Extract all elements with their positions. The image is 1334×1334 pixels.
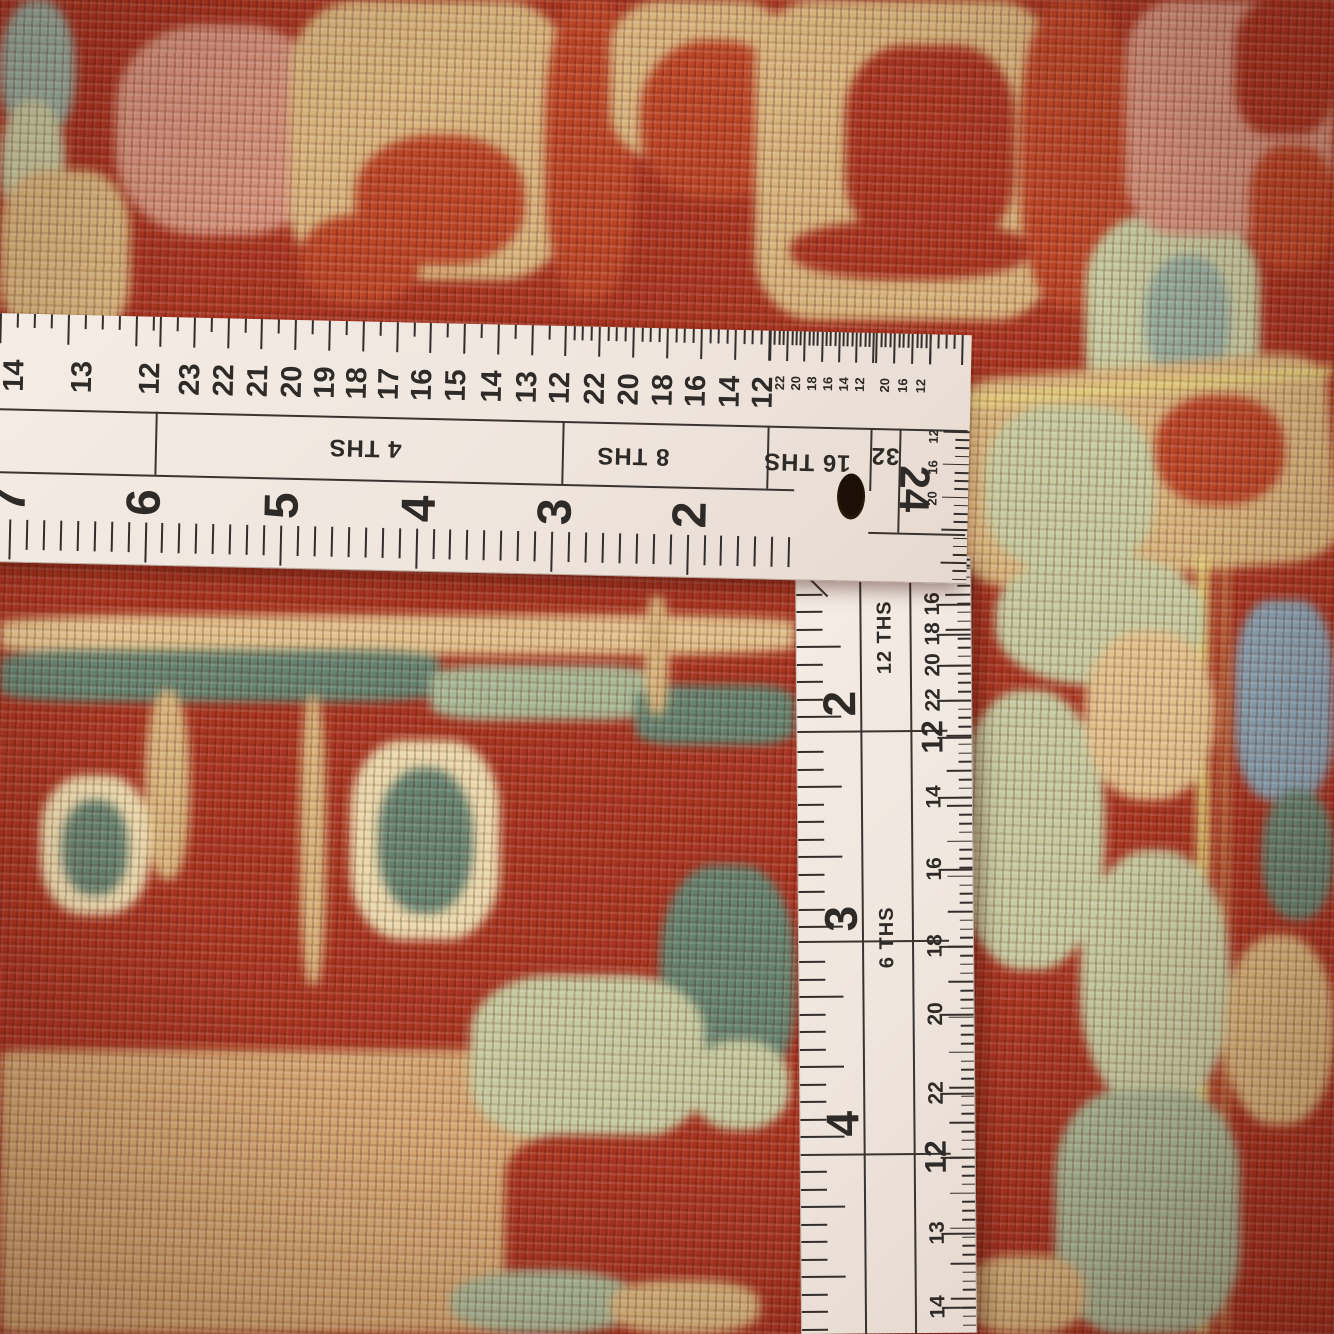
ruler-tick xyxy=(313,526,316,556)
ruler-tick xyxy=(700,329,703,359)
ruler-tick xyxy=(398,528,401,558)
corner-mini-number: 16 xyxy=(926,460,939,475)
ruler-tick xyxy=(830,332,832,346)
ruler-tick xyxy=(534,531,537,561)
ruler-tick xyxy=(812,332,814,346)
ruler-tick xyxy=(598,327,601,357)
ruler-tick xyxy=(463,324,466,354)
ruler-tick xyxy=(962,1139,975,1141)
inch-number: 3 xyxy=(818,906,864,932)
ruler-tick xyxy=(717,329,719,343)
ruler-tick xyxy=(963,1289,976,1291)
ruler-tick xyxy=(798,751,824,753)
corner-tick xyxy=(942,496,968,498)
scale-number: 12 xyxy=(853,377,866,392)
ruler-hang-hole xyxy=(837,473,866,520)
ruler-tick xyxy=(860,333,862,347)
ruler-tick xyxy=(920,334,922,348)
ruler-tick xyxy=(800,1066,844,1068)
inch-number: 2 xyxy=(666,501,715,529)
ruler-tick xyxy=(396,322,399,352)
scale-number: 20 xyxy=(278,365,308,398)
number-tick xyxy=(942,1307,976,1309)
ruler-tick xyxy=(796,611,822,613)
ruler-tick xyxy=(102,315,104,329)
ruler-tick xyxy=(961,1095,974,1097)
ruler-tick xyxy=(531,325,534,355)
ruler-tick xyxy=(953,335,955,349)
ruler-tick xyxy=(246,525,249,555)
corner-tick xyxy=(955,472,969,474)
ruler-tick xyxy=(801,1223,827,1225)
scale-label: 12 THS xyxy=(874,600,895,674)
ruler-tick xyxy=(795,331,797,345)
ruler-tick xyxy=(959,823,972,825)
ruler-tick xyxy=(945,594,970,596)
ruler-tick xyxy=(958,708,971,710)
corner-tick xyxy=(952,570,966,572)
ruler-tick xyxy=(500,531,503,561)
ruler-tick xyxy=(67,315,70,345)
ruler-tick xyxy=(961,1043,974,1045)
number-tick xyxy=(940,1093,974,1095)
ruler-tick xyxy=(548,326,550,340)
scale-label: 16 THS xyxy=(763,449,851,475)
scale-number: 19 xyxy=(311,366,341,399)
ruler-line xyxy=(0,408,968,432)
ruler-tick xyxy=(227,318,230,348)
ruler-tick xyxy=(312,320,314,334)
ruler-tick xyxy=(855,333,858,363)
ruler-tick xyxy=(279,526,282,566)
ruler-tick xyxy=(961,1078,974,1080)
ruler-tick xyxy=(957,585,970,587)
ruler-tick xyxy=(948,911,973,913)
ruler-tick xyxy=(798,873,824,875)
ruler-tick xyxy=(798,768,824,770)
ruler-tick xyxy=(961,1025,974,1027)
scale-label: 4 THS xyxy=(328,435,402,461)
corner-tick xyxy=(954,480,968,482)
ruler-tick xyxy=(449,529,452,559)
band-divider xyxy=(154,412,157,475)
ruler-tick xyxy=(797,628,823,630)
corner-tick xyxy=(952,578,966,580)
scale-number: 21 xyxy=(244,365,274,398)
ruler-tick xyxy=(960,893,973,895)
ruler-tick xyxy=(743,330,745,344)
ruler-tick xyxy=(959,752,972,754)
ruler-tick xyxy=(801,1206,845,1208)
scale-label: 32 xyxy=(870,443,899,468)
ruler-tick xyxy=(800,331,802,345)
ruler-tick xyxy=(760,330,762,344)
ruler-tick xyxy=(961,1060,974,1062)
ruler-tick xyxy=(962,1148,975,1150)
ruler-tick xyxy=(961,1113,974,1115)
ruler-tick xyxy=(658,328,660,342)
scale-number: 20 xyxy=(878,378,891,393)
scale-number: 20 xyxy=(615,373,645,406)
ruler-tick xyxy=(692,329,694,343)
ruler-tick xyxy=(959,849,972,851)
ruler-tick xyxy=(960,972,973,974)
ruler-tick xyxy=(720,536,723,566)
ruler-tick xyxy=(960,884,973,886)
ruler-tick xyxy=(737,536,740,566)
corner-tick xyxy=(955,447,969,449)
ruler-tick xyxy=(261,319,264,349)
ruler-tick xyxy=(430,323,433,353)
ruler-tick xyxy=(947,805,972,807)
ruler-tick xyxy=(244,319,246,333)
ruler-tick xyxy=(937,334,939,348)
scale-number: 18 xyxy=(649,374,679,407)
ruler-tick xyxy=(797,646,841,648)
ruler-tick xyxy=(379,322,381,336)
ruler-tick xyxy=(962,1254,975,1256)
ruler-tick xyxy=(347,527,350,557)
ruler-tick xyxy=(413,323,415,337)
ruler-tick xyxy=(949,1087,974,1089)
ruler-tick xyxy=(684,329,686,343)
ruler-tick xyxy=(796,593,822,595)
scale-number: 15 xyxy=(442,369,472,402)
scale-number: 14 xyxy=(716,375,746,408)
ruler-tick xyxy=(675,329,677,343)
ruler-tick xyxy=(135,316,138,346)
ruler-tick xyxy=(961,1007,974,1009)
ruler-tick xyxy=(962,1219,975,1221)
ruler-tick xyxy=(958,691,971,693)
ruler-tick xyxy=(960,999,973,1001)
ruler-tick xyxy=(902,334,904,348)
scale-number: 13 xyxy=(513,371,543,404)
ruler-tick xyxy=(466,530,469,560)
photo-vignette xyxy=(0,0,1334,1334)
ruler-tick xyxy=(193,318,196,348)
ruler-tick xyxy=(774,331,776,345)
ruler-tick xyxy=(801,1171,827,1173)
scale-number: 14 xyxy=(837,377,850,392)
ruler-tick xyxy=(960,990,973,992)
ruler-tick xyxy=(330,527,333,557)
ruler-tick xyxy=(778,331,780,345)
ruler-tick xyxy=(958,682,971,684)
ruler-tick xyxy=(345,321,347,335)
ruler-tick xyxy=(703,535,706,565)
ruler-tick xyxy=(949,1016,974,1018)
ruler-tick xyxy=(294,320,297,350)
ruler-tick xyxy=(381,528,384,558)
ruler-tick xyxy=(798,838,824,840)
ruler-tick xyxy=(798,786,842,788)
ruler-tick xyxy=(447,323,449,337)
ruler-tick xyxy=(893,333,896,363)
ruler-tick xyxy=(127,522,130,552)
ruler-tick xyxy=(843,332,845,346)
ruler-tick xyxy=(947,875,972,877)
ruler-tick xyxy=(962,1175,975,1177)
scale-number: 12 xyxy=(914,379,927,394)
ruler-tick xyxy=(946,629,971,631)
ruler-tick xyxy=(808,332,810,346)
ruler-tick xyxy=(364,528,367,558)
ruler-tick xyxy=(791,331,793,345)
ruler-tick xyxy=(961,1034,974,1036)
ruler-tick xyxy=(958,647,971,649)
ruler-tick xyxy=(799,978,825,980)
ruler-tick xyxy=(960,955,973,957)
ruler-horizontal-arm: 1413122322212019181716151413122220181614… xyxy=(0,313,972,584)
corner-tick xyxy=(953,546,967,548)
ruler-tick xyxy=(34,314,36,328)
ruler-tick xyxy=(847,332,849,346)
ruler-tick xyxy=(801,1188,827,1190)
ruler-tick xyxy=(889,333,891,347)
ruler-tick xyxy=(962,1201,975,1203)
ruler-tick xyxy=(817,332,819,346)
scale-label: 6 THS xyxy=(877,906,897,968)
ruler-tick xyxy=(751,330,753,344)
ruler-tick xyxy=(93,521,96,551)
ruler-tick xyxy=(0,313,2,343)
ruler-tick xyxy=(951,1298,976,1300)
ruler-tick xyxy=(153,317,155,331)
ruler-tick xyxy=(328,321,331,351)
ruler-tick xyxy=(802,1276,846,1278)
number-tick xyxy=(937,737,971,739)
ruler-tick xyxy=(961,335,964,365)
ruler-tick xyxy=(17,314,19,328)
ruler-tick xyxy=(483,530,486,560)
number-tick xyxy=(940,1014,974,1016)
ruler-tick xyxy=(734,330,737,360)
ruler-tick xyxy=(911,334,914,364)
corner-tick xyxy=(953,554,967,556)
ruler-tick xyxy=(948,981,973,983)
ruler-tick xyxy=(726,330,728,344)
ruler-tick xyxy=(957,620,970,622)
ruler-tick xyxy=(802,1258,828,1260)
ruler-tick xyxy=(582,326,584,340)
ruler-tick xyxy=(950,1227,975,1229)
corner-tick xyxy=(941,562,967,564)
scale-number: 22 xyxy=(773,376,786,391)
ruler-tick xyxy=(962,1166,975,1168)
ruler-tick xyxy=(144,523,147,563)
ruler-vertical-arm: 12 THS6 THS23414161820221214161820221213… xyxy=(795,557,977,1334)
ruler-tick xyxy=(618,533,621,563)
inch-number: 4 xyxy=(395,495,444,523)
ruler-tick xyxy=(958,726,971,728)
ruler-tick xyxy=(573,326,575,340)
inch-number: 6 xyxy=(120,489,169,517)
ruler-tick xyxy=(797,663,823,665)
ruler-tick xyxy=(963,1280,976,1282)
ruler-tick xyxy=(195,524,198,554)
ruler-tick xyxy=(958,717,971,719)
ruler-tick xyxy=(957,611,970,613)
scale-number: 12 xyxy=(546,371,576,404)
ruler-tick xyxy=(962,1131,975,1133)
ruler-tick xyxy=(959,814,972,816)
scale-number: 12 xyxy=(136,362,166,395)
ruler-tick xyxy=(838,332,841,362)
inch-number: 5 xyxy=(258,492,307,520)
ruler-tick xyxy=(754,536,757,566)
ruler-tick xyxy=(800,1083,826,1085)
ruler-tick xyxy=(825,332,827,346)
number-tick xyxy=(941,1157,975,1159)
inch-number: 4 xyxy=(819,1111,865,1137)
corner-tick xyxy=(943,463,969,465)
corner-tick xyxy=(955,439,969,441)
ruler-tick xyxy=(959,779,972,781)
ruler-tick xyxy=(178,523,181,553)
ruler-tick xyxy=(709,329,711,343)
ruler-tick xyxy=(278,319,280,333)
ruler-tick xyxy=(800,1048,826,1050)
scale-number: 23 xyxy=(176,363,206,396)
ruler-tick xyxy=(564,326,567,356)
ruler-tick xyxy=(802,1328,828,1330)
ruler-tick xyxy=(962,1245,975,1247)
ruler-tick xyxy=(85,315,87,329)
ruler-tick xyxy=(961,1069,974,1071)
ruler-tick xyxy=(590,327,592,341)
ruler-tick xyxy=(263,525,266,555)
ruler-tick xyxy=(800,1101,826,1103)
ruler-tick xyxy=(962,1210,975,1212)
ruler-tick xyxy=(945,335,947,349)
corner-tick xyxy=(954,505,968,507)
ruler-tick xyxy=(799,996,843,998)
scale-number: 22 xyxy=(210,364,240,397)
ruler-tick xyxy=(635,534,638,564)
ruler-tick xyxy=(959,787,972,789)
ruler-tick xyxy=(229,524,232,554)
scale-number: 14 xyxy=(0,359,29,392)
ruler-tick xyxy=(821,332,824,362)
ruler-tick xyxy=(798,821,824,823)
number-tick xyxy=(941,1233,975,1235)
ruler-tick xyxy=(76,521,79,551)
ruler-tick xyxy=(584,533,587,563)
ruler-tick xyxy=(616,327,618,341)
ruler-tick xyxy=(950,1192,975,1194)
scale-number: 16 xyxy=(896,378,909,393)
corner-line xyxy=(868,532,965,536)
corner-tick xyxy=(953,537,967,539)
ruler-tick xyxy=(481,324,483,338)
scale-label: 8 THS xyxy=(596,443,670,469)
number-tick xyxy=(938,869,972,871)
ruler-tick xyxy=(959,831,972,833)
ruler-tick xyxy=(963,1315,976,1317)
scale-number: 18 xyxy=(805,376,818,391)
scale-number: 13 xyxy=(68,361,98,394)
ruler-tick xyxy=(880,333,882,347)
ruler-tick xyxy=(788,537,791,567)
scale-number: 20 xyxy=(789,376,802,391)
ruler-tick xyxy=(800,1013,826,1015)
ruler-tick xyxy=(958,638,971,640)
ruler-tick xyxy=(960,963,973,965)
ruler-tick xyxy=(868,333,870,347)
ruler-tick xyxy=(110,522,113,552)
corner-mini-number: 12 xyxy=(927,429,940,444)
ruler-tick xyxy=(8,519,11,559)
band-divider xyxy=(561,421,564,484)
ruler-tick xyxy=(686,535,689,575)
ruler-tick xyxy=(159,317,162,347)
corner-tick xyxy=(944,431,970,433)
ruler-tick xyxy=(951,1263,976,1265)
number-tick xyxy=(939,946,973,948)
ruler-tick xyxy=(514,325,516,339)
ruler-tick xyxy=(650,328,652,342)
inch-number: 3 xyxy=(531,498,580,526)
scale-number: 17 xyxy=(375,368,405,401)
ruler-tick xyxy=(958,673,971,675)
ruler-tick xyxy=(550,532,553,572)
ruler-tick xyxy=(898,334,900,348)
ruler-tick xyxy=(804,331,807,361)
inch-number: 7 xyxy=(0,486,34,514)
ruler-tick xyxy=(212,524,215,554)
corner-mini-number: 20 xyxy=(925,491,938,506)
ruler-tick xyxy=(517,531,520,561)
ruler-tick xyxy=(362,321,365,351)
ruler-tick xyxy=(875,333,878,363)
band-divider xyxy=(859,557,867,1333)
number-tick xyxy=(937,634,971,636)
number-tick xyxy=(937,665,971,667)
corner-tick xyxy=(955,455,969,457)
ruler-tick xyxy=(161,523,164,553)
ruler-tick xyxy=(963,1271,976,1273)
ruler-tick xyxy=(119,316,121,330)
scale-number: 16 xyxy=(821,377,834,392)
ruler-tick xyxy=(800,1031,826,1033)
ruler-tick xyxy=(786,331,789,361)
band-divider xyxy=(909,557,917,1333)
ruler-tick xyxy=(925,334,927,348)
ruler-tick xyxy=(884,333,886,347)
ruler-tick xyxy=(769,331,772,361)
ruler-tick xyxy=(607,327,609,341)
ruler-tick xyxy=(51,314,53,328)
number-tick xyxy=(936,604,970,606)
ruler-tick xyxy=(851,333,853,347)
ruler-tick xyxy=(802,1293,828,1295)
scale-number: 16 xyxy=(408,368,438,401)
ruler-tick xyxy=(641,328,643,342)
ruler-tick xyxy=(782,331,784,345)
photo-scene: 12 THS6 THS23414161820221214161820221213… xyxy=(0,0,1334,1334)
ruler-tick xyxy=(652,534,655,564)
scale-number: 18 xyxy=(343,367,373,400)
ruler-tick xyxy=(958,743,971,745)
corner-tick xyxy=(954,488,968,490)
ruler-tick xyxy=(907,334,909,348)
number-tick xyxy=(937,700,971,702)
ruler-tick xyxy=(26,520,29,550)
ruler-tick xyxy=(959,858,972,860)
ruler-tick xyxy=(624,327,626,341)
ruler-tick xyxy=(834,332,836,346)
